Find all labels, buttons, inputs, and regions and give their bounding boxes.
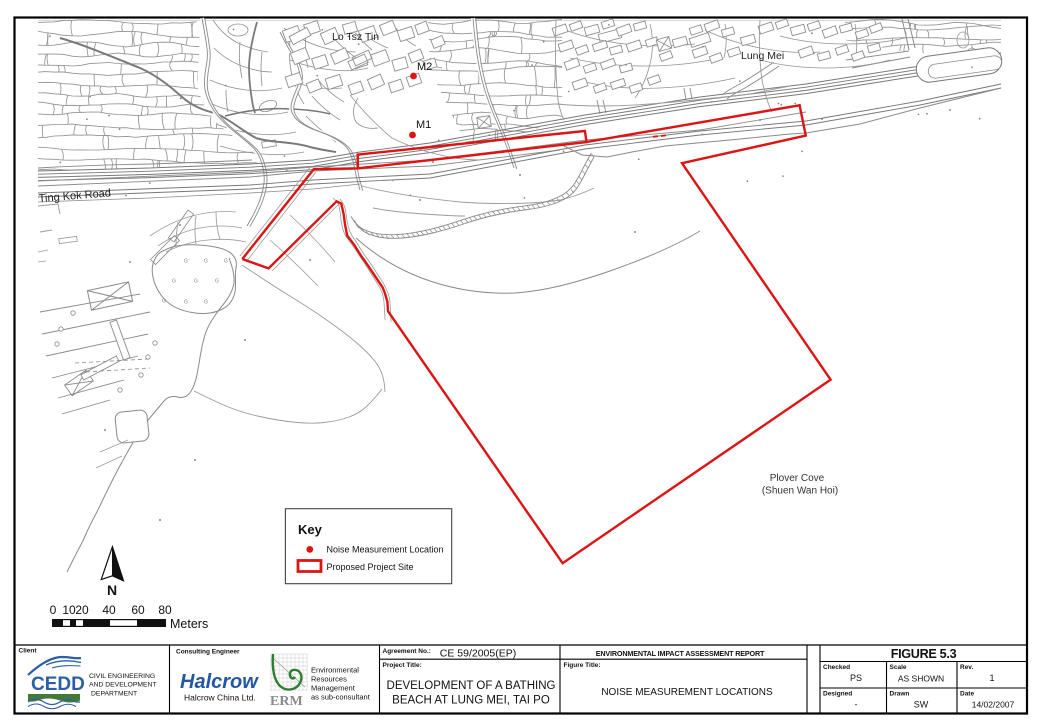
svg-text:ENVIRONMENTAL IMPACT ASSESSMEN: ENVIRONMENTAL IMPACT ASSESSMENT REPORT — [596, 649, 765, 658]
svg-text:Designed: Designed — [823, 690, 852, 697]
svg-text:G: G — [204, 300, 208, 306]
svg-text:M2: M2 — [417, 61, 432, 73]
svg-text:DEVELOPMENT OF A BATHING: DEVELOPMENT OF A BATHING — [387, 680, 556, 692]
svg-text:NOISE MEASUREMENT LOCATIONS: NOISE MEASUREMENT LOCATIONS — [601, 687, 773, 698]
svg-text:AS SHOWN: AS SHOWN — [898, 674, 944, 684]
svg-text:Agreement No.:: Agreement No.: — [383, 648, 431, 655]
svg-text:G: G — [224, 259, 228, 265]
svg-text:G: G — [184, 259, 188, 265]
svg-text:40: 40 — [102, 603, 116, 617]
svg-text:Environmental: Environmental — [311, 666, 359, 675]
svg-text:G: G — [204, 259, 208, 265]
svg-text:M1: M1 — [416, 119, 431, 131]
svg-text:Client: Client — [19, 648, 38, 655]
svg-text:(Shuen Wan Hoi): (Shuen Wan Hoi) — [762, 486, 838, 497]
svg-text:0: 0 — [50, 603, 57, 617]
svg-text:Lung Mei: Lung Mei — [741, 50, 784, 62]
svg-text:AND DEVELOPMENT: AND DEVELOPMENT — [89, 682, 157, 689]
svg-text:Management: Management — [311, 684, 356, 693]
svg-text:Scale: Scale — [890, 664, 907, 671]
svg-text:60: 60 — [131, 603, 145, 617]
svg-text:Halcrow China Ltd.: Halcrow China Ltd. — [184, 693, 256, 703]
svg-text:DEPARTMENT: DEPARTMENT — [91, 690, 137, 697]
svg-text:Project Title:: Project Title: — [383, 662, 422, 669]
svg-text:G: G — [162, 299, 166, 305]
svg-text:10: 10 — [62, 603, 76, 617]
svg-text:PS: PS — [850, 673, 862, 683]
svg-text:FIGURE 5.3: FIGURE 5.3 — [891, 647, 957, 661]
svg-text:-: - — [855, 700, 858, 710]
svg-text:G: G — [172, 279, 176, 285]
svg-text:G: G — [215, 279, 219, 285]
svg-text:14/02/2007: 14/02/2007 — [972, 700, 1015, 710]
svg-text:as sub-consultant: as sub-consultant — [311, 693, 371, 702]
svg-text:Rev.: Rev. — [960, 664, 973, 671]
svg-text:Lo Tsz Tin: Lo Tsz Tin — [332, 31, 379, 43]
svg-text:1: 1 — [989, 673, 994, 683]
svg-text:CEDD: CEDD — [31, 674, 85, 695]
svg-text:Plover Cove: Plover Cove — [770, 473, 825, 484]
svg-text:80: 80 — [158, 603, 172, 617]
svg-text:Resources: Resources — [311, 675, 347, 684]
svg-text:Drawn: Drawn — [890, 690, 910, 697]
svg-text:BEACH AT LUNG MEI, TAI PO: BEACH AT LUNG MEI, TAI PO — [392, 694, 550, 706]
svg-text:G: G — [194, 279, 198, 285]
svg-text:Key: Key — [298, 522, 323, 537]
svg-text:Figure Title:: Figure Title: — [564, 662, 601, 669]
svg-text:Date: Date — [960, 690, 974, 697]
svg-text:CIVIL ENGINEERING: CIVIL ENGINEERING — [89, 673, 155, 680]
svg-text:N: N — [107, 582, 117, 598]
svg-text:ERM: ERM — [270, 694, 303, 709]
svg-text:Consulting Engineer: Consulting Engineer — [176, 649, 240, 656]
svg-text:CE 59/2005(EP): CE 59/2005(EP) — [440, 648, 516, 660]
svg-text:Checked: Checked — [823, 664, 850, 671]
svg-text:Noise Measurement Location: Noise Measurement Location — [327, 545, 444, 555]
svg-text:Meters: Meters — [170, 617, 208, 631]
svg-text:Halcrow: Halcrow — [180, 671, 259, 693]
svg-text:SW: SW — [914, 700, 929, 710]
svg-text:Proposed Project Site: Proposed Project Site — [327, 562, 414, 572]
svg-text:G: G — [184, 300, 188, 306]
svg-text:20: 20 — [75, 603, 89, 617]
